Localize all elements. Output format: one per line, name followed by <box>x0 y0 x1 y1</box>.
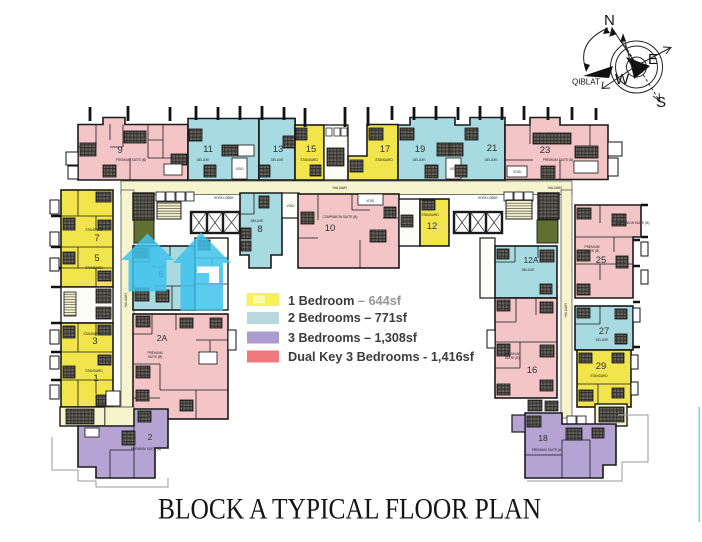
svg-text:2 Bedrooms – 771sf: 2 Bedrooms – 771sf <box>288 310 408 325</box>
svg-text:27: 27 <box>599 326 610 337</box>
svg-text:SUITE (B): SUITE (B) <box>148 355 163 359</box>
svg-text:2A: 2A <box>157 333 168 343</box>
svg-text:STANDARD: STANDARD <box>85 228 103 232</box>
svg-text:COMPANION SUITE (B): COMPANION SUITE (B) <box>615 221 650 225</box>
svg-text:HALLWAY: HALLWAY <box>333 186 349 190</box>
svg-text:VOID: VOID <box>366 199 374 203</box>
svg-text:HALLWAY: HALLWAY <box>124 292 128 308</box>
svg-text:DELUXE: DELUXE <box>271 158 284 162</box>
svg-text:SUITE (B): SUITE (B) <box>505 356 520 360</box>
svg-text:8: 8 <box>257 224 262 235</box>
svg-text:12: 12 <box>427 221 438 232</box>
svg-text:21: 21 <box>487 143 498 154</box>
svg-text:HALLWAY: HALLWAY <box>548 186 564 190</box>
svg-text:STANDARD: STANDARD <box>85 266 103 270</box>
svg-text:DELUXE: DELUXE <box>197 158 210 162</box>
svg-text:W: W <box>615 71 630 88</box>
svg-text:VOID: VOID <box>287 204 295 208</box>
svg-text:15: 15 <box>306 144 317 155</box>
svg-text:PREMIUM SUITE (B): PREMIUM SUITE (B) <box>543 158 573 162</box>
svg-text:DELUXE: DELUXE <box>522 268 535 272</box>
svg-text:SOFA LOBBY: SOFA LOBBY <box>214 196 235 200</box>
svg-text:SUITE (B): SUITE (B) <box>585 249 600 253</box>
svg-text:Dual Key 3 Bedrooms - 1,416sf: Dual Key 3 Bedrooms - 1,416sf <box>288 349 475 364</box>
svg-text:STANDARD: STANDARD <box>590 374 608 378</box>
svg-text:7: 7 <box>94 233 99 244</box>
svg-text:11: 11 <box>203 144 213 155</box>
svg-text:DELUXE: DELUXE <box>596 338 609 342</box>
svg-text:COMPANION SUITE (B): COMPANION SUITE (B) <box>323 215 358 219</box>
svg-text:25: 25 <box>596 255 607 266</box>
svg-text:E: E <box>648 51 658 68</box>
svg-text:N: N <box>604 12 615 29</box>
svg-text:16: 16 <box>527 365 538 376</box>
svg-text:PREMIUM SUITE (A): PREMIUM SUITE (A) <box>131 447 161 451</box>
svg-text:SOFA LOBBY: SOFA LOBBY <box>478 196 499 200</box>
svg-text:DELUXE: DELUXE <box>485 158 498 162</box>
svg-text:HALLWAY: HALLWAY <box>564 302 568 318</box>
svg-text:STANDARD: STANDARD <box>421 213 439 217</box>
svg-text:STANDARD: STANDARD <box>300 158 318 162</box>
svg-text:29: 29 <box>596 361 607 372</box>
svg-text:19: 19 <box>415 144 426 155</box>
svg-text:PREMIUM SUITE (A): PREMIUM SUITE (A) <box>532 448 562 452</box>
svg-text:QIBLAT: QIBLAT <box>572 78 600 87</box>
svg-text:1 Bedroom – 644sf: 1 Bedroom – 644sf <box>288 293 402 308</box>
svg-text:10: 10 <box>325 223 336 234</box>
svg-text:17: 17 <box>380 144 391 155</box>
svg-text:STANDARD: STANDARD <box>375 158 393 162</box>
svg-text:1: 1 <box>93 373 98 384</box>
svg-text:13: 13 <box>273 144 284 155</box>
svg-text:3: 3 <box>92 336 97 347</box>
svg-text:DELUXE: DELUXE <box>251 219 264 223</box>
svg-text:5: 5 <box>94 253 99 264</box>
svg-text:STANDARD: STANDARD <box>83 332 101 336</box>
svg-text:3 Bedrooms – 1,308sf: 3 Bedrooms – 1,308sf <box>288 330 418 345</box>
svg-text:STANDARD: STANDARD <box>85 369 103 373</box>
svg-text:PREMIUM SUITE (B): PREMIUM SUITE (B) <box>116 158 146 162</box>
svg-text:18: 18 <box>538 433 548 443</box>
svg-text:DELUXE: DELUXE <box>413 158 426 162</box>
svg-text:23: 23 <box>540 145 551 156</box>
svg-text:VOID: VOID <box>513 170 521 174</box>
svg-text:12A: 12A <box>523 255 538 265</box>
svg-text:2: 2 <box>148 432 153 442</box>
svg-text:BLOCK A TYPICAL FLOOR PLAN: BLOCK A TYPICAL FLOOR PLAN <box>158 494 541 526</box>
svg-text:9: 9 <box>117 145 122 156</box>
svg-text:VOID: VOID <box>236 167 244 171</box>
svg-text:S: S <box>656 94 666 111</box>
